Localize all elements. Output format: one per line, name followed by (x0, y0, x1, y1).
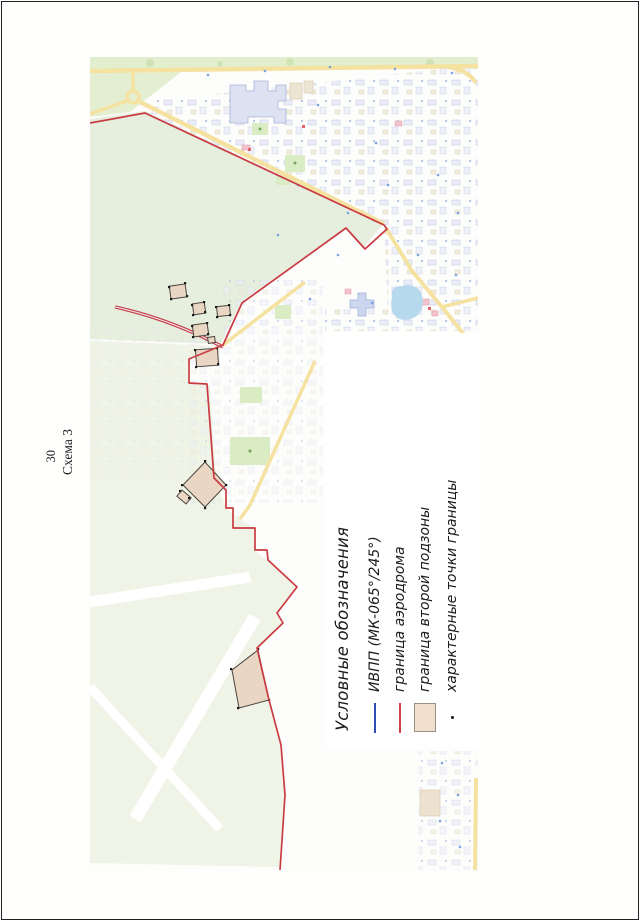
figure-caption: Схема 3 (59, 424, 76, 518)
boundary-points-symbol (451, 701, 454, 735)
legend-item-label: ИВПП (МК-065°/245°) (367, 536, 383, 692)
runway-symbol (374, 701, 377, 735)
page-number: 30 (44, 424, 59, 518)
document-page: 30 Схема 3 (0, 0, 640, 921)
legend-item-label: характерные точки границы (444, 480, 460, 692)
legend-item-label: граница аэродрома (392, 546, 408, 692)
castle-building (230, 81, 286, 123)
aerodrome-boundary-symbol (399, 701, 402, 735)
legend-title: Условные обозначения (333, 527, 352, 731)
subzone-symbol (414, 701, 436, 735)
legend-panel: Условные обозначения ИВПП (МК-065°/245°)… (325, 333, 478, 748)
legend-item-label: граница второй подзоны (417, 507, 433, 692)
legend-item-aerodrome-boundary: граница аэродрома (388, 546, 412, 735)
legend-item-boundary-points: характерные точки границы (440, 480, 464, 735)
page-label-block: 30 Схема 3 (44, 424, 82, 518)
legend-item-second-subzone: граница второй подзоны (412, 507, 438, 735)
pond (391, 285, 423, 320)
legend-item-runway: ИВПП (МК-065°/245°) (363, 536, 387, 735)
